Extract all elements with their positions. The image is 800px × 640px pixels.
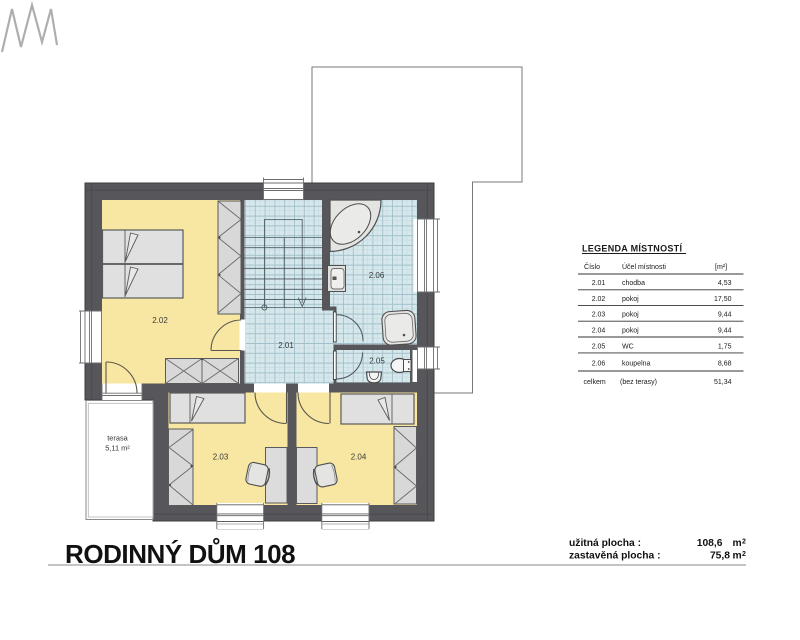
svg-text:51,34: 51,34 xyxy=(714,379,732,386)
svg-text:2.04: 2.04 xyxy=(592,328,606,335)
svg-text:2: 2 xyxy=(742,539,746,546)
svg-text:pokoj: pokoj xyxy=(622,296,639,303)
svg-text:2.03: 2.03 xyxy=(213,453,229,462)
svg-text:m: m xyxy=(733,538,742,549)
svg-text:[m²]: [m²] xyxy=(715,264,727,271)
svg-text:užitná plocha :: užitná plocha : xyxy=(569,538,641,549)
svg-text:WC: WC xyxy=(622,344,634,351)
svg-text:Číslo: Číslo xyxy=(584,262,600,271)
svg-text:pokoj: pokoj xyxy=(622,328,639,335)
svg-text:2.02: 2.02 xyxy=(592,296,606,303)
svg-text:chodba: chodba xyxy=(622,280,645,287)
svg-text:Účel místnosti: Účel místnosti xyxy=(622,262,666,271)
svg-text:17,50: 17,50 xyxy=(714,296,732,303)
svg-text:9,44: 9,44 xyxy=(718,328,732,335)
svg-text:2: 2 xyxy=(742,551,746,558)
svg-text:terasa: terasa xyxy=(107,434,128,443)
svg-text:2.01: 2.01 xyxy=(592,280,606,287)
svg-text:1,75: 1,75 xyxy=(718,344,732,351)
svg-text:2.05: 2.05 xyxy=(369,357,385,366)
svg-text:koupelna: koupelna xyxy=(622,361,651,368)
svg-text:pokoj: pokoj xyxy=(622,312,639,319)
svg-text:8,68: 8,68 xyxy=(718,361,732,368)
svg-text:5,11 m²: 5,11 m² xyxy=(105,444,130,453)
svg-text:108,6: 108,6 xyxy=(697,538,723,549)
svg-text:2.06: 2.06 xyxy=(369,271,385,280)
svg-text:2.02: 2.02 xyxy=(152,316,168,325)
svg-text:75,8: 75,8 xyxy=(710,550,730,561)
svg-text:RODINNÝ DŮM 108: RODINNÝ DŮM 108 xyxy=(65,537,295,569)
svg-text:2.05: 2.05 xyxy=(592,344,606,351)
svg-text:zastavěná plocha :: zastavěná plocha : xyxy=(569,550,661,561)
svg-text:9,44: 9,44 xyxy=(718,312,732,319)
svg-text:(bez terasy): (bez terasy) xyxy=(620,379,657,386)
svg-text:2.01: 2.01 xyxy=(278,341,294,350)
svg-text:celkem: celkem xyxy=(584,379,606,386)
svg-text:4,53: 4,53 xyxy=(718,280,732,287)
svg-text:LEGENDA MÍSTNOSTÍ: LEGENDA MÍSTNOSTÍ xyxy=(582,244,682,254)
svg-text:2.06: 2.06 xyxy=(592,361,606,368)
svg-text:m: m xyxy=(733,550,742,561)
svg-text:2.03: 2.03 xyxy=(592,312,606,319)
svg-text:2.04: 2.04 xyxy=(351,453,367,462)
